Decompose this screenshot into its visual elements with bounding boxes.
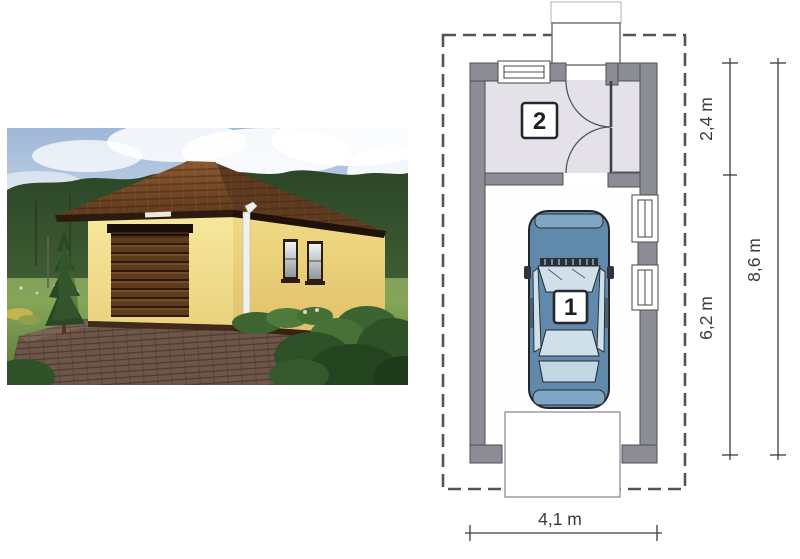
floor-plan: 1 2 2,4 m 6 — [0, 0, 800, 559]
garage-window-lower — [632, 265, 658, 310]
dimension-garage-depth: 6,2 m — [696, 296, 716, 340]
dimension-width: 4,1 m — [538, 509, 582, 529]
room-2-floor — [485, 80, 640, 173]
driveway-apron — [505, 412, 620, 497]
storage-window — [498, 61, 550, 83]
garage-window-upper — [632, 195, 658, 242]
floor-plan-drawing: 1 2 2,4 m 6 — [0, 0, 800, 559]
room-1-number: 1 — [564, 294, 577, 321]
entry-walkway — [551, 2, 621, 23]
entry-canopy — [552, 23, 620, 65]
room-1-label: 1 — [554, 291, 587, 323]
dimension-room2-depth: 2,4 m — [696, 97, 716, 141]
room-2-number: 2 — [533, 108, 546, 135]
room-2-label: 2 — [522, 103, 557, 138]
dimension-total-depth: 8,6 m — [744, 238, 764, 282]
page: 1 2 2,4 m 6 — [0, 0, 800, 559]
